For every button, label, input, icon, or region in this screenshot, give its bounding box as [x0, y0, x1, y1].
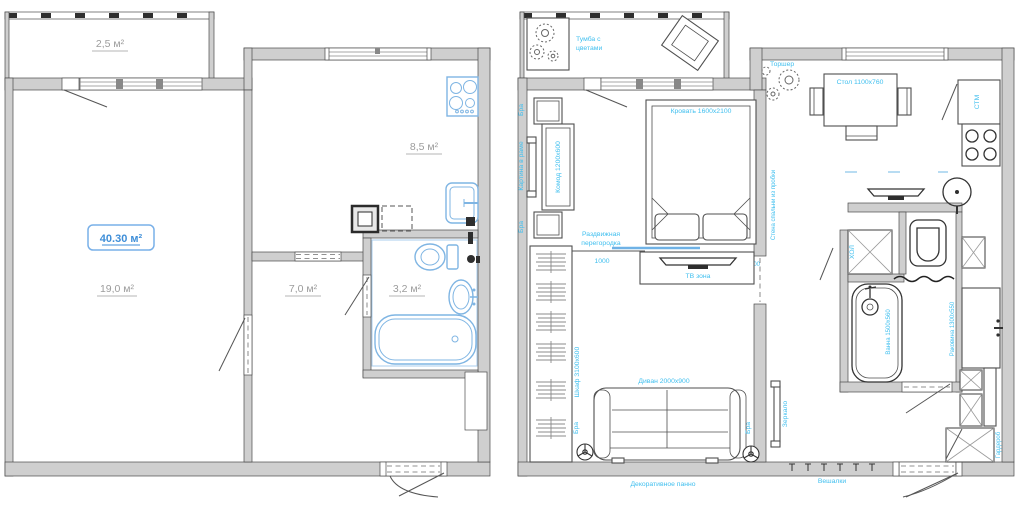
left-plan: 2,5 м² 8,5 м² 19,0 м² 7,0 м² 3,2 м² 40.3…: [5, 12, 490, 497]
counter-label: Раковина 1300x550: [950, 301, 956, 356]
fridge-label: ХОЛ: [849, 245, 856, 259]
mirror: [771, 381, 780, 447]
bathroom-fixtures: [372, 217, 480, 366]
picture-frame: [527, 137, 536, 197]
flower-stand: [527, 18, 569, 70]
wardrobe-label: Шкаф 3100x600: [574, 347, 581, 398]
bedside-table-top: [534, 98, 562, 124]
vent-shaft: [352, 206, 412, 232]
floorplan-page: 2,5 м² 8,5 м² 19,0 м² 7,0 м² 3,2 м² 40.3…: [0, 0, 1024, 510]
coat-hooks-label: Вешалки: [818, 478, 846, 485]
bathtub-right: [852, 284, 902, 382]
floor-lamp-plant-icon: [762, 67, 799, 100]
tv-kitchen-icon: [868, 189, 924, 200]
hall-closet: [946, 428, 994, 462]
right-plan: Тумба с цветами Бра Бра Картина в раме К…: [518, 12, 1014, 497]
sconce-label-4: Бра: [745, 422, 752, 434]
fridge: [820, 230, 892, 280]
total-area-badge: 40.30 м²: [88, 225, 154, 250]
flower-stand-label-2: цветами: [576, 45, 602, 52]
right-walls: [518, 12, 1014, 497]
bedside-table-bottom: [534, 212, 562, 238]
toilet-right-icon: [910, 220, 946, 266]
wardrobe: [530, 246, 572, 462]
washing-machine-label: СТМ: [974, 94, 981, 109]
bathtub-label: Ванна 1500x560: [886, 309, 892, 355]
partition-width-label: 1000: [594, 258, 609, 265]
sofa-label: Диван 2000x900: [638, 378, 689, 385]
sofa: [594, 388, 746, 463]
balcony-area-label: 2,5 м²: [96, 38, 125, 50]
balcony-armchair: [662, 16, 719, 71]
spot-light-left-icon: [577, 444, 593, 460]
tv-zone-label: ТВ зона: [686, 273, 711, 280]
stove-right-icon: [962, 124, 1000, 166]
living-area-label: 19,0 м²: [100, 283, 135, 295]
floor-lamp-label: Торшер: [770, 61, 794, 68]
mirror-label: Зеркало: [782, 401, 789, 428]
basin-icon: [449, 280, 478, 314]
hall-closet-label: Гардероб: [996, 431, 1002, 458]
bed-label: Кровать 1600x2100: [671, 108, 732, 115]
bath-area-label: 3,2 м²: [393, 283, 422, 295]
sconce-label-3: Бра: [573, 422, 580, 434]
toilet-icon: [415, 244, 458, 270]
spot-light-right-icon: [743, 446, 759, 462]
bed: [646, 100, 756, 244]
sconce-label-2: Бра: [518, 221, 525, 233]
partition-label-1: Раздвижная: [582, 231, 620, 238]
counter-strip: [960, 237, 1003, 426]
total-area-value: 40.30 м²: [100, 233, 143, 245]
picture-label: Картина в раме: [518, 141, 525, 190]
dresser-label: Комод 1200x600: [555, 141, 562, 193]
partition-label-2: перегородка: [581, 240, 621, 247]
hall-area-label: 7,0 м²: [289, 283, 318, 295]
washing-machine: [942, 80, 1000, 124]
cork-wall-label: Стена спальни из пробки: [771, 170, 777, 240]
dining-table-label: Стол 1100x760: [837, 79, 884, 86]
floorplan-canvas: 2,5 м² 8,5 м² 19,0 м² 7,0 м² 3,2 м² 40.3…: [0, 0, 1024, 510]
sconce-label-1: Бра: [518, 104, 525, 116]
bathtub-icon: [375, 315, 476, 364]
panno-label: Декоративное панно: [630, 481, 695, 488]
stove-icon: [447, 77, 478, 116]
kitchen-area-label: 8,5 м²: [410, 141, 439, 153]
flower-stand-label-1: Тумба с: [576, 35, 601, 43]
